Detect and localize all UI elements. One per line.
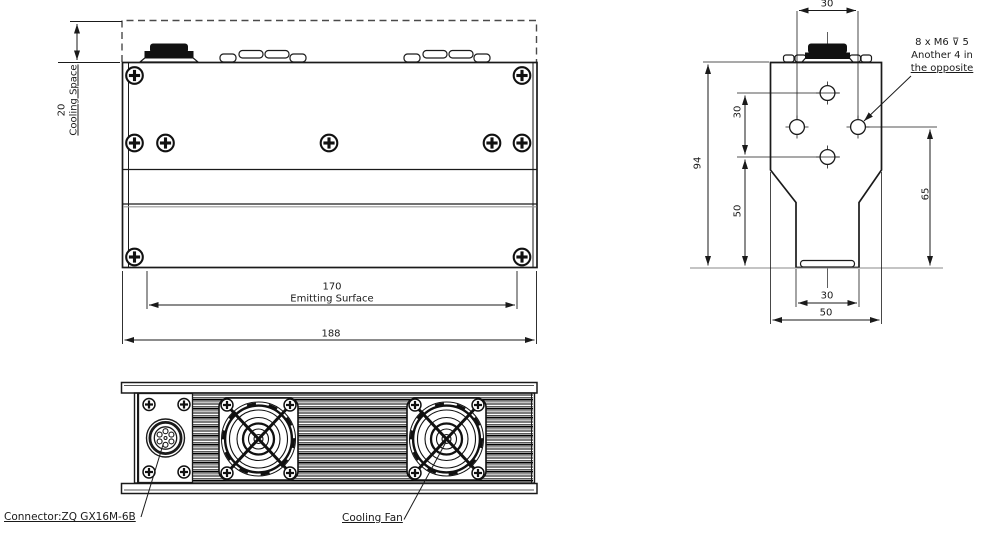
fan-bracket-tabs-right xyxy=(404,51,490,63)
thread-note: 8 x M6 ⊽ 5 Another 4 in the opposite xyxy=(901,36,982,75)
connector-silhouette-side-icon xyxy=(808,44,847,54)
bottom-view-drawing xyxy=(122,383,538,520)
dim-height-total: 94 xyxy=(693,157,704,170)
drawing-canvas xyxy=(0,0,982,534)
dim-emitting-label: Emitting Surface xyxy=(290,294,373,305)
cooling-fan-left-icon xyxy=(219,398,298,480)
technical-drawing-page: 20 Cooling Space 170 Emitting Surface 18… xyxy=(0,0,982,534)
device-body-front xyxy=(123,63,538,268)
dim-cooling-space-value: 20 xyxy=(57,104,68,117)
dim-hole-to-base: 50 xyxy=(733,205,744,218)
dim-overall-width: 188 xyxy=(321,329,340,340)
cooling-fan-label: Cooling Fan xyxy=(342,513,403,524)
thread-note-line2: Another 4 in xyxy=(901,49,982,62)
dim-side-overall-width: 50 xyxy=(820,308,833,319)
cooling-fan-right-icon xyxy=(407,398,486,480)
thread-note-line1: 8 x M6 ⊽ 5 xyxy=(901,36,982,49)
connector-label: Connector:ZQ GX16M-6B xyxy=(4,512,136,523)
dim-hole-span-vertical: 30 xyxy=(733,106,744,119)
dim-side-hole-to-base: 65 xyxy=(921,188,932,201)
fan-bracket-tabs-left xyxy=(220,51,306,63)
connector-icon xyxy=(147,419,185,457)
dim-emitting-value: 170 xyxy=(322,282,341,293)
dim-hole-span-top: 30 xyxy=(821,0,834,10)
thread-note-line3: the opposite xyxy=(901,62,982,75)
dim-base-width: 30 xyxy=(821,291,834,302)
dim-cooling-space-label: Cooling Space xyxy=(69,64,80,135)
